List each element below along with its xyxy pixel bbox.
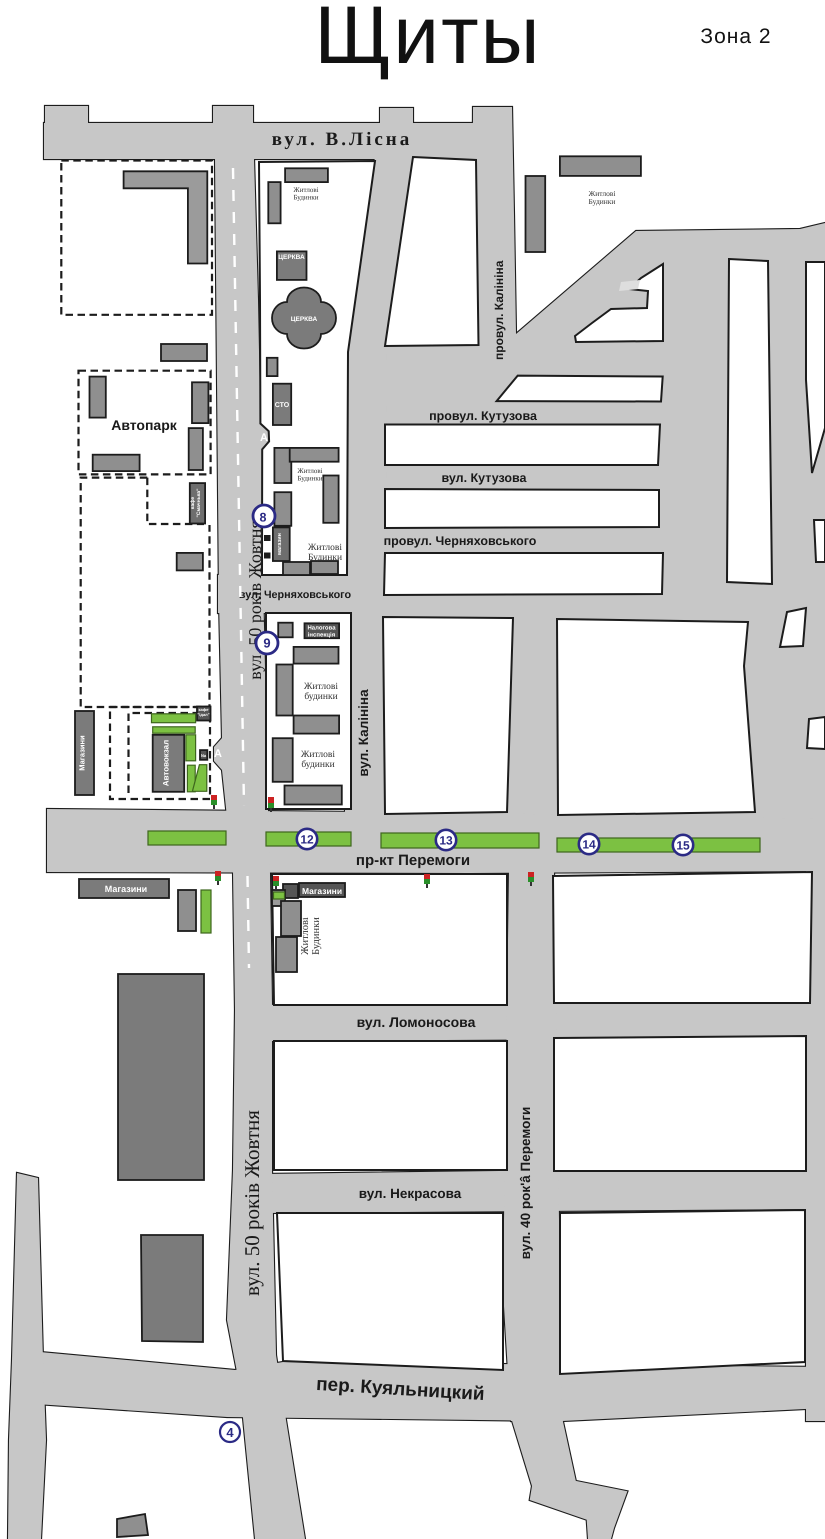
svg-text:вул. В.Лісна: вул. В.Лісна: [272, 129, 413, 150]
svg-text:Магазини: Магазини: [302, 886, 342, 896]
svg-text:вул. 40 рок'â Перемоги: вул. 40 рок'â Перемоги: [518, 1107, 533, 1260]
svg-text:вул. Кутузова: вул. Кутузова: [441, 471, 527, 485]
svg-text:вул. Некрасова: вул. Некрасова: [359, 1186, 462, 1201]
svg-text:Житлові: Житлові: [304, 682, 338, 692]
svg-text:12: 12: [300, 833, 314, 847]
svg-text:будинки: будинки: [304, 692, 337, 702]
svg-text:4: 4: [226, 1425, 234, 1440]
svg-text:Na: Na: [201, 753, 207, 758]
svg-text:провул. Черняховського: провул. Черняховського: [384, 534, 537, 548]
svg-text:Житлові: Житлові: [301, 750, 335, 760]
svg-text:провул. Калініна: провул. Калініна: [492, 260, 506, 360]
svg-text:A: A: [214, 748, 222, 760]
svg-text:Будинки: Будинки: [297, 475, 322, 483]
svg-text:ЦЕРКВА: ЦЕРКВА: [278, 254, 305, 261]
svg-text:Будинки: Будинки: [589, 197, 616, 206]
svg-text:14: 14: [582, 838, 596, 852]
svg-text:8: 8: [260, 511, 267, 525]
svg-text:Налогова: Налогова: [307, 625, 336, 632]
svg-text:13: 13: [439, 834, 453, 848]
svg-text:"Смачнька": "Смачнька": [196, 488, 202, 518]
svg-text:ЦЕРКВА: ЦЕРКВА: [291, 316, 318, 323]
svg-text:Житлові: Житлові: [300, 917, 311, 955]
svg-text:вул. 50 років Жовтня: вул. 50 років Жовтня: [240, 1110, 264, 1296]
svg-text:Будинки: Будинки: [311, 917, 322, 955]
svg-text:пр-кт Перемоги: пр-кт Перемоги: [356, 852, 470, 869]
svg-text:Автопарк: Автопарк: [111, 417, 178, 433]
svg-text:Зона 2: Зона 2: [700, 25, 771, 48]
svg-text:Автовокзал: Автовокзал: [162, 740, 171, 786]
svg-text:9: 9: [263, 636, 270, 651]
svg-text:15: 15: [676, 839, 690, 853]
svg-text:Магазини: Магазини: [78, 735, 87, 771]
svg-text:Будинки: Будинки: [308, 553, 342, 563]
svg-text:вул. Ломоносова: вул. Ломоносова: [357, 1014, 476, 1030]
svg-text:Житлові: Житлові: [308, 543, 342, 553]
svg-text:інспекція: інспекція: [308, 632, 336, 639]
svg-text:будинки: будинки: [301, 760, 334, 770]
svg-text:магазин: магазин: [277, 533, 283, 555]
svg-text:провул. Кутузова: провул. Кутузова: [429, 409, 538, 423]
svg-text:"Ідал": "Ідал": [197, 712, 209, 717]
svg-text:вул. Калініна: вул. Калініна: [356, 689, 371, 777]
svg-text:Магазини: Магазини: [105, 884, 147, 894]
svg-text:A: A: [260, 432, 268, 444]
svg-text:Щиты: Щиты: [314, 0, 541, 81]
svg-text:СТО: СТО: [275, 402, 290, 409]
svg-text:вул. 50 років Жовтня: вул. 50 років Жовтня: [245, 520, 265, 679]
svg-text:Будинки: Будинки: [293, 194, 318, 202]
